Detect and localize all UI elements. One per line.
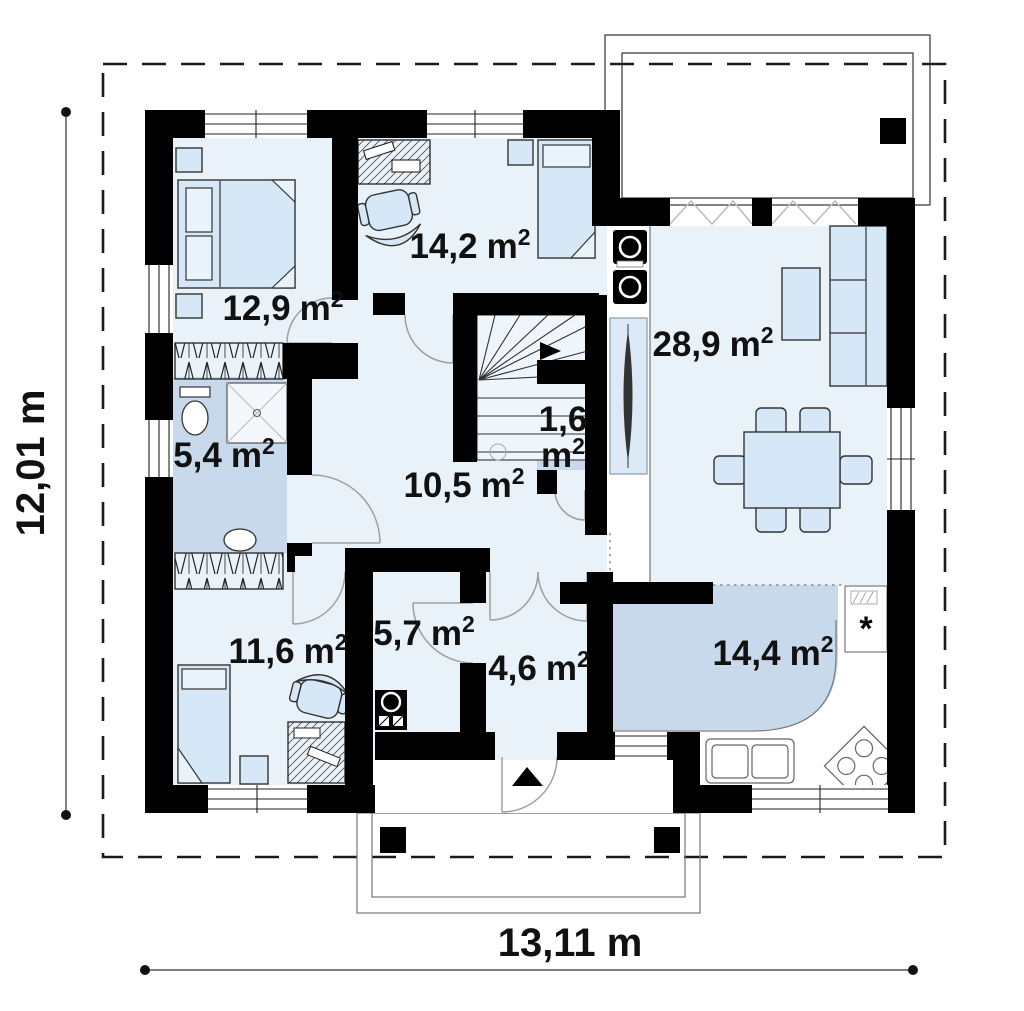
pillow — [182, 669, 226, 689]
shower — [227, 383, 287, 443]
sofa — [830, 226, 887, 386]
nightstand — [176, 148, 202, 172]
nightstand — [176, 294, 202, 318]
toilet-tank — [180, 387, 210, 397]
height-dimension-label: 12,01 m — [9, 390, 53, 537]
room-area-label-living-dining-room: 28,9m2 — [652, 322, 773, 364]
dining-table — [744, 432, 840, 508]
kitchen-sink — [706, 739, 794, 783]
window — [427, 110, 523, 138]
porch-column-right — [654, 827, 680, 853]
coffee-table — [782, 268, 820, 340]
window — [752, 785, 888, 813]
appliance-1 — [613, 230, 647, 264]
room-area-label-bedroom-2: 11,6m2 — [228, 629, 347, 671]
window — [205, 110, 307, 138]
toilet — [182, 401, 208, 435]
pillow — [186, 236, 212, 280]
terrace-column — [880, 118, 906, 144]
room-area-label-hall: 10,5m2 — [403, 463, 524, 505]
wardrobe — [175, 343, 283, 379]
nightstand — [508, 140, 533, 165]
nightstand — [240, 756, 268, 784]
window — [615, 732, 667, 760]
freezer-asterisk-icon: * — [859, 610, 873, 648]
width-dimension-label: 13,11 m — [498, 921, 643, 965]
boiler — [375, 690, 407, 730]
window — [145, 265, 173, 333]
floor-plan-canvas: 12,01 m 13,11 m * — [0, 0, 1024, 1011]
floor-plan-page: 12,01 m 13,11 m * — [0, 0, 1024, 1011]
pillow — [186, 188, 212, 232]
wardrobe — [175, 553, 283, 589]
room-area-label-kitchen: 14,4m2 — [712, 631, 833, 673]
room-area-label-bedroom-1: 12,9m2 — [222, 286, 343, 328]
window — [887, 408, 915, 510]
window — [145, 420, 173, 477]
washbasin — [224, 529, 256, 551]
pillow — [543, 145, 590, 167]
window — [208, 785, 307, 813]
room-area-label-study-bedroom: 14,2m2 — [409, 224, 530, 266]
porch-column-left — [380, 827, 406, 853]
